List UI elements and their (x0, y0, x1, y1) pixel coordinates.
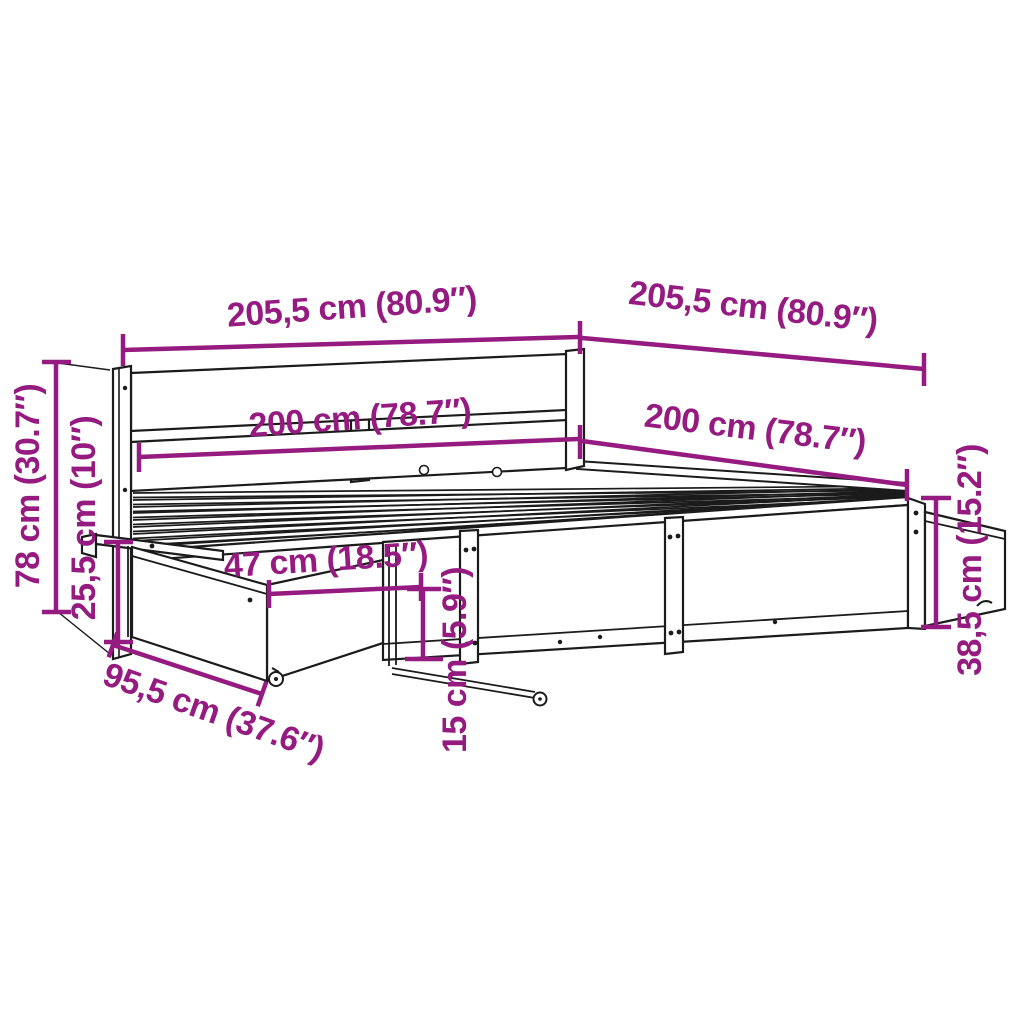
dim-ground-clearance-label: 15 cm (5.9″) (436, 567, 474, 753)
dimension-diagram: 205,5 cm (80.9″) 205,5 cm (80.9″) 200 cm… (0, 0, 1024, 1024)
dim-headboard-height: 78 cm (30.7″) (9, 362, 71, 612)
slat-hook (493, 468, 502, 477)
foot-end-post (908, 498, 925, 629)
dim-side-rail-height-label: 38,5 cm (15.2″) (951, 444, 989, 676)
dim-headboard-overall-width: 205,5 cm (80.9″) (123, 279, 580, 366)
bed-dimension-drawing: 205,5 cm (80.9″) 205,5 cm (80.9″) 200 cm… (0, 0, 1024, 1024)
dim-headboard-height-label: 78 cm (30.7″) (9, 384, 47, 588)
dim-drawer-front-height-label: 25,5 cm (10″) (65, 416, 103, 620)
dim-headboard-overall-width-label: 205,5 cm (80.9″) (226, 279, 478, 334)
dim-frame-overall-length: 205,5 cm (80.9″) (582, 274, 924, 386)
slat-hook (420, 466, 429, 475)
dim-frame-overall-length-label: 205,5 cm (80.9″) (627, 274, 880, 340)
bed-far-rail (577, 461, 908, 491)
